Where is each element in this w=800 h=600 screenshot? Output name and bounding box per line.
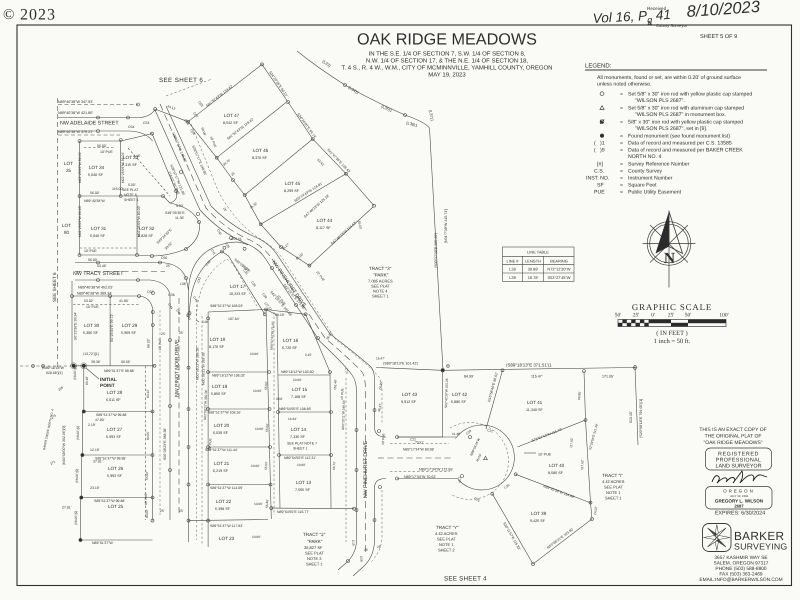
svg-text:L38: L38 [509,267,516,272]
svg-text:LOT 16: LOT 16 [283,338,299,343]
svg-text:OREGON: OREGON [723,489,755,494]
svg-text:5,969 SF: 5,969 SF [121,331,137,335]
svg-text:C08: C08 [359,556,364,562]
svg-text:County Survey: County Survey [628,169,662,175]
svg-text:10.00': 10.00' [297,463,306,467]
svg-text:"PARK": "PARK" [373,273,389,278]
svg-text:S89°51'37"W 117.93': S89°51'37"W 117.93' [210,524,243,528]
svg-text:Received: Received [647,6,667,11]
svg-text:NOTE 1: NOTE 1 [439,542,454,547]
svg-text:LINE TABLE: LINE TABLE [527,250,549,255]
svg-text:C15: C15 [351,540,356,546]
svg-text:N02°25'09"W 80.03': N02°25'09"W 80.03' [137,205,141,237]
svg-text:SEE PLAT: SEE PLAT [604,485,623,490]
svg-text:107.84': 107.84' [228,317,240,321]
svg-text:MAY 19, 2023: MAY 19, 2023 [428,72,466,79]
svg-text:LOT 21: LOT 21 [214,461,230,466]
svg-text:N89°17'34"W 80.98': N89°17'34"W 80.98' [403,448,435,452]
svg-text:(S89°18'13"E 371.51')1: (S89°18'13"E 371.51')1 [506,363,552,368]
svg-text:SHEET 1: SHEET 1 [124,198,139,202]
svg-text:10.00': 10.00' [251,464,260,468]
svg-text:FAX (503) 363-2469: FAX (503) 363-2469 [719,572,763,578]
svg-text:2023: 2023 [20,7,56,24]
svg-text:THE ORIGINAL PLAT OF: THE ORIGINAL PLAT OF [705,434,762,440]
svg-text:LOT 45: LOT 45 [285,181,301,186]
svg-text:36,827 SF: 36,827 SF [304,545,323,550]
svg-text:LOT 42: LOT 42 [452,392,468,397]
svg-text:171.05': 171.05' [602,375,614,379]
svg-text:14.34': 14.34' [288,417,297,421]
svg-text:9,425 SF: 9,425 SF [530,519,546,523]
svg-text:53.46': 53.46' [97,264,107,268]
svg-text:15' PUE: 15' PUE [158,338,162,350]
svg-text:10.00': 10.00' [250,352,259,356]
svg-text:SF: SF [597,183,604,189]
svg-text:LOT: LOT [64,161,73,166]
svg-text:TRACT "2": TRACT "2" [303,532,326,537]
svg-text:6,039 SF: 6,039 SF [213,431,229,435]
svg-text:L38: L38 [180,282,186,286]
svg-text:POINT: POINT [100,383,115,389]
svg-text:LAND SURVEYOR: LAND SURVEYOR [715,464,761,470]
svg-text:15.47': 15.47' [376,357,385,361]
svg-text:NOTE 1: NOTE 1 [606,490,621,495]
svg-text:5/8" x 30" iron rod with yello: 5/8" x 30" iron rod with yellow plastic … [628,120,743,126]
svg-text:All monuments, found or set, a: All monuments, found or set, are within … [597,75,741,81]
svg-text:LOT 39: LOT 39 [531,511,547,516]
svg-text:S00°08'23"E 368.38': S00°08'23"E 368.38' [163,428,167,460]
svg-text:LOT 25: LOT 25 [108,504,124,509]
svg-text:(S20°08'18"E 794.05')[1]: (S20°08'18"E 794.05')[1] [639,399,643,438]
svg-text:( )1: ( )1 [594,141,605,147]
svg-text:=: = [620,120,623,126]
svg-text:N89°54'55"E 116.77': N89°54'55"E 116.77' [277,510,309,514]
svg-text:LOT 20: LOT 20 [214,423,230,428]
svg-text:C53: C53 [143,121,149,125]
svg-text:Set 5/8" x 30" iron rod with a: Set 5/8" x 30" iron rod with aluminum ca… [628,106,744,112]
svg-text:Instrument Number: Instrument Number [628,176,673,182]
svg-text:OAK RIDGE MEADOWS: OAK RIDGE MEADOWS [357,31,537,49]
svg-text:1 inch = 50 ft.: 1 inch = 50 ft. [654,338,691,345]
svg-text:9.15': 9.15' [305,353,312,357]
svg-text:N89°17'34"W 70.62': N89°17'34"W 70.62' [404,475,436,479]
svg-text:(N00°08'00"W 302.06')[9]: (N00°08'00"W 302.06')[9] [62,426,66,465]
svg-text:=: = [620,162,623,168]
svg-text:NW ADELAIDE STREET: NW ADELAIDE STREET [60,121,119,127]
svg-text:53.02': 53.02' [84,299,94,303]
svg-text:5.00': 5.00' [128,183,136,187]
svg-text:S89°51'37"W 99.88': S89°51'37"W 99.88' [94,499,125,503]
svg-text:NW TRACY STREET: NW TRACY STREET [73,271,124,277]
svg-text:0': 0' [651,313,655,319]
svg-text:2.19': 2.19' [88,423,96,427]
svg-text:=: = [620,134,623,140]
svg-text:5,856 SF: 5,856 SF [211,392,227,396]
svg-text:Public Utility Easement: Public Utility Easement [628,190,682,196]
svg-text:SEE SHEET 6: SEE SHEET 6 [159,77,203,84]
svg-text:N89°40'38"W: N89°40'38"W [84,199,106,203]
svg-text:25': 25' [377,545,382,549]
svg-text:25': 25' [633,313,640,319]
svg-text:LOT 46: LOT 46 [253,148,269,153]
svg-text:N02°25'09"W 80.03': N02°25'09"W 80.03' [78,205,82,237]
svg-text:12.19': 12.19' [90,448,100,452]
svg-text:C54: C54 [128,125,134,129]
svg-text:4.42 ACRES: 4.42 ACRES [435,531,458,536]
svg-text:LOT 15: LOT 15 [292,387,308,392]
svg-text:5,993 SF: 5,993 SF [107,474,123,478]
svg-text:12' PUE: 12' PUE [208,438,212,450]
svg-text:=: = [620,169,623,175]
svg-text:SURVEYING: SURVEYING [734,542,787,552]
svg-text:N72°12'30"W: N72°12'30"W [547,267,570,272]
svg-text:=: = [620,176,623,182]
svg-text:LOT 41: LOT 41 [527,400,543,405]
svg-text:10' PUE: 10' PUE [144,493,148,505]
svg-text:N: N [664,250,675,267]
svg-text:SHEET 1: SHEET 1 [306,562,323,567]
svg-text:=: = [620,183,623,189]
svg-text:N89°54'55"E 108.86': N89°54'55"E 108.86' [279,407,312,411]
svg-text:N89°51'37"W: N89°51'37"W [92,541,114,545]
svg-text:C22: C22 [410,438,416,442]
svg-text:Data of record and measured pe: Data of record and measured per BAKER CR… [628,148,743,154]
svg-text:30.88': 30.88' [528,267,539,272]
svg-text:N02°25'09"W 80.01': N02°25'09"W 80.01' [78,151,82,183]
svg-text:115.00': 115.00' [112,187,123,191]
svg-text:INST. NO.: INST. NO. [586,176,609,182]
svg-text:"WILSON PLS 2687" in monument: "WILSON PLS 2687" in monument box. [635,112,726,118]
svg-text:(13.72')[1]: (13.72')[1] [83,352,99,356]
svg-text:6,219 SF: 6,219 SF [213,469,229,473]
svg-text:55.05': 55.05' [264,461,268,470]
svg-text:50': 50' [615,313,622,319]
svg-text:7,108 SF: 7,108 SF [291,395,307,399]
svg-text:S89°51'37"W 99.88': S89°51'37"W 99.88' [96,413,127,417]
svg-text:LOT 19: LOT 19 [212,384,228,389]
svg-text:Data of record and measured pe: Data of record and measured per C.S. 135… [628,141,732,147]
svg-text:8,176 SF: 8,176 SF [209,345,225,349]
svg-text:80: 80 [64,230,70,235]
svg-text:60.56': 60.56' [121,360,131,364]
svg-text:LOT 30: LOT 30 [84,323,100,328]
svg-text:10.00': 10.00' [254,502,263,506]
svg-text:23.19': 23.19' [90,486,100,490]
svg-text:SEE PLAT: SEE PLAT [437,537,456,542]
svg-text:N89°51'37"E 99.88': N89°51'37"E 99.88' [104,369,135,373]
svg-text:PUE: PUE [594,190,605,196]
svg-text:=: = [620,92,623,98]
svg-text:LOT 23: LOT 23 [219,536,235,541]
svg-text:C50: C50 [161,256,167,260]
svg-text:LOT 34: LOT 34 [89,165,105,170]
svg-text:LENGTH: LENGTH [525,258,541,263]
svg-text:25': 25' [179,509,184,513]
svg-text:N89°40'38"W 421.80': N89°40'38"W 421.80' [58,111,93,115]
svg-text:SALEM, OREGON 97317: SALEM, OREGON 97317 [714,561,769,567]
svg-text:1.36: 1.36 [168,293,175,297]
svg-text:N89°40'38"W 452.03': N89°40'38"W 452.03' [78,286,113,290]
svg-text:SEE PLAT: SEE PLAT [122,188,139,192]
svg-text:LEGEND:: LEGEND: [585,63,612,70]
svg-text:TRACT "I": TRACT "I" [602,473,623,478]
svg-text:25': 25' [364,548,369,552]
svg-text:10.00': 10.00' [253,389,262,393]
svg-text:SEE PLAT NOTE 7: SEE PLAT NOTE 7 [287,442,317,446]
svg-text:25': 25' [161,332,166,336]
svg-text:SHEET 1: SHEET 1 [293,447,308,451]
svg-text:NOTE 8: NOTE 8 [124,193,137,197]
svg-text:LOT 18: LOT 18 [210,337,226,342]
svg-text:( )9: ( )9 [594,148,605,154]
svg-text:8,580 SF: 8,580 SF [548,471,564,475]
svg-text:NOTE 3: NOTE 3 [307,556,322,561]
svg-text:3657 KASHMIR WAY SE: 3657 KASHMIR WAY SE [714,555,767,561]
svg-text:Survey Reference Number: Survey Reference Number [628,162,690,168]
svg-text:TRACT "3": TRACT "3" [369,266,392,271]
svg-text:JULY 19, 1994: JULY 19, 1994 [730,494,749,498]
svg-text:( IN FEET ): ( IN FEET ) [656,330,687,337]
svg-text:115.47': 115.47' [531,375,543,379]
svg-text:5,040 SF: 5,040 SF [90,234,106,238]
svg-text:84.99': 84.99' [464,375,474,379]
svg-text:10.00': 10.00' [252,535,261,539]
svg-text:25': 25' [179,331,184,335]
svg-text:LOT 14: LOT 14 [291,427,307,432]
svg-text:1.46': 1.46' [133,154,141,158]
svg-text:LOT 17: LOT 17 [230,284,246,289]
svg-text:N89°54'55"E 112.31': N89°54'55"E 112.31' [284,456,316,460]
svg-text:60.00': 60.00' [145,509,149,518]
svg-text:6,720 SF: 6,720 SF [282,346,298,350]
svg-text:LOT 40: LOT 40 [549,463,565,468]
svg-text:[#]: [#] [597,162,603,168]
svg-text:LOT 32: LOT 32 [139,226,155,231]
svg-text:"OAK RIDGE MEADOWS": "OAK RIDGE MEADOWS" [703,440,762,446]
svg-text:=: = [620,190,623,196]
svg-text:8,117 SF: 8,117 SF [316,226,331,230]
svg-text:55.00': 55.00' [145,471,149,480]
svg-text:"WILSON PLS 2687".: "WILSON PLS 2687". [635,98,685,104]
svg-text:Set 5/8" x 30" iron rod with y: Set 5/8" x 30" iron rod with yellow plas… [628,92,752,98]
svg-text:N00°08'23"W 368.38': N00°08'23"W 368.38' [196,347,200,380]
svg-text:BEARING: BEARING [550,258,568,263]
svg-text:EXPIRES: 6/30/2024: EXPIRES: 6/30/2024 [715,511,765,517]
svg-text:3.02': 3.02' [276,397,283,401]
svg-text:LINE #: LINE # [507,258,520,263]
svg-text:SHEET 5 OF 9: SHEET 5 OF 9 [700,34,737,40]
svg-text:(S89°18'13"E 101.42'): (S89°18'13"E 101.42') [383,362,418,366]
svg-text:LOT 47: LOT 47 [224,113,240,118]
svg-text:[N01°7'39"W 415.71']: [N01°7'39"W 415.71'] [444,209,448,243]
svg-text:=: = [620,106,623,112]
svg-text:LOT 43: LOT 43 [402,392,418,397]
svg-text:N89°17'34"W 172.65': N89°17'34"W 172.65' [419,468,453,472]
svg-text:47.80': 47.80' [95,418,105,422]
svg-text:S89°51'37"W 108.16': S89°51'37"W 108.16' [208,411,241,415]
svg-text:66.22': 66.22' [147,338,151,348]
svg-text:S53°27'45"W: S53°27'45"W [548,275,571,280]
svg-text:IN THE S.E. 1/4 OF SECTION 7,: IN THE S.E. 1/4 OF SECTION 7, S.W. 1/4 O… [369,51,526,58]
svg-text:55.00': 55.00' [265,423,269,432]
svg-text:SEE PLAT: SEE PLAT [305,551,324,556]
svg-text:(58.00')[9]: (58.00')[9] [73,366,77,380]
svg-text:S0°25'00"E 99.72': S0°25'00"E 99.72' [110,314,114,342]
svg-text:9,912 SF: 9,912 SF [401,400,417,404]
svg-text:25': 25' [668,313,675,319]
svg-text:©: © [3,7,14,23]
svg-text:6,011 SF: 6,011 SF [106,398,121,402]
svg-text:(N89°18'18"W: (N89°18'18"W [42,366,65,370]
svg-text:4.42 ACRES: 4.42 ACRES [602,479,625,484]
svg-text:"WILSON PLS 2687", set in [9].: "WILSON PLS 2687", set in [9]. [635,126,707,132]
svg-text:SHEET 1: SHEET 1 [372,294,389,299]
svg-text:25': 25' [160,509,165,513]
svg-text:(S00°17'39"E 385.20'): (S00°17'39"E 385.20') [434,233,438,268]
svg-text:C52: C52 [147,290,153,294]
svg-text:8,299 SF: 8,299 SF [284,189,300,193]
svg-text:10' PUE: 10' PUE [538,453,552,457]
svg-text:Square Feet: Square Feet [628,183,657,189]
svg-text:10' PUE: 10' PUE [100,150,113,154]
svg-text:(58.00')[9]: (58.00')[9] [76,426,80,440]
svg-text:10' PUE: 10' PUE [84,249,97,253]
svg-text:10.00': 10.00' [293,378,302,382]
svg-text:6,886 SF: 6,886 SF [451,400,467,404]
svg-text:628.68')[1]: 628.68')[1] [46,371,62,375]
svg-text:10' PUE: 10' PUE [86,305,99,309]
svg-text:PHONE (503) 588-8800: PHONE (503) 588-8800 [715,566,767,572]
svg-text:(58.00')[9]: (58.00')[9] [75,469,79,483]
svg-text:7,336 SF: 7,336 SF [290,435,306,439]
svg-text:=: = [620,148,623,154]
svg-text:11.36': 11.36' [175,216,184,220]
svg-text:11,340 SF: 11,340 SF [526,408,543,412]
svg-text:INITIAL: INITIAL [100,377,117,383]
svg-text:LOT 13: LOT 13 [296,480,312,485]
svg-text:10' PUE: 10' PUE [340,388,344,400]
svg-text:NW PINOT NOIR DRIVE: NW PINOT NOIR DRIVE [175,339,181,397]
svg-text:70.51': 70.51' [415,441,424,445]
svg-text:5,306 SF: 5,306 SF [83,331,99,335]
svg-text:N89°40'38"W 389.34': N89°40'38"W 389.34' [77,292,112,296]
svg-text:2687: 2687 [734,504,744,509]
svg-text:5,993 SF: 5,993 SF [106,435,122,439]
svg-text:60.19': 60.19' [146,389,150,398]
svg-text:L39: L39 [509,275,516,280]
svg-text:16.78': 16.78' [528,275,539,280]
svg-text:LOT 29: LOT 29 [122,323,138,328]
svg-text:Found monument (see found monu: Found monument (see found monument list) [628,134,730,140]
svg-text:LOT 27: LOT 27 [107,427,123,432]
svg-text:N89°40'38"W 347.93': N89°40'38"W 347.93' [58,100,93,104]
svg-text:8,370 SF: 8,370 SF [252,156,268,160]
svg-text:LOT 44: LOT 44 [317,218,333,223]
svg-text:613.15': 613.15' [629,411,633,423]
svg-text:NORTH NO. 4: NORTH NO. 4 [628,154,661,160]
svg-text:8,542 SF: 8,542 SF [223,121,239,125]
svg-text:N89°40'38"W 375.21': N89°40'38"W 375.21' [58,130,93,134]
svg-text:69.85': 69.85' [577,391,582,400]
svg-text:"PARK": "PARK" [307,539,323,544]
svg-text:=: = [620,141,623,147]
svg-text:10.00': 10.00' [255,427,264,431]
svg-text:S49°35'30"E: S49°35'30"E [165,211,185,215]
svg-text:EMAIL:INFO@BARKERWILSON.COM: EMAIL:INFO@BARKERWILSON.COM [699,577,782,583]
svg-text:C55: C55 [231,237,237,241]
svg-text:N02°25'09"W 80.01': N02°25'09"W 80.01' [121,151,125,183]
svg-text:10' PUE: 10' PUE [381,433,386,445]
svg-text:S0°23'36"E 99.94': S0°23'36"E 99.94' [74,312,78,340]
svg-text:7,565 SF: 7,565 SF [295,488,311,492]
svg-text:60.00': 60.00' [146,431,150,440]
svg-text:N89°18'12"W 108.02': N89°18'12"W 108.02' [212,374,245,378]
svg-text:10,233 SF: 10,233 SF [229,292,247,296]
svg-text:(58.00')[9]: (58.00')[9] [74,511,78,525]
svg-text:56.48': 56.48' [265,499,269,508]
svg-text:unless noted otherwise.: unless noted otherwise. [597,82,652,88]
svg-text:C.S.: C.S. [594,169,604,175]
svg-text:T. 4 S., R. 4 W., W.M., CITY O: T. 4 S., R. 4 W., W.M., CITY OF MCMINNVI… [341,65,552,72]
svg-text:100': 100' [719,313,728,319]
svg-text:THIS IS AN EXACT COPY OF: THIS IS AN EXACT COPY OF [699,427,766,433]
svg-text:27.81': 27.81' [62,506,72,510]
svg-text:56.00': 56.00' [88,258,98,262]
svg-text:153.48': 153.48' [333,379,338,390]
svg-text:NW PINEHURST DRIVE: NW PINEHURST DRIVE [363,440,369,498]
svg-text:S89°51'37"W 114.69': S89°51'37"W 114.69' [210,486,243,490]
svg-text:S89°51'37"W 168.03': S89°51'37"W 168.03' [210,304,243,308]
svg-text:65.18': 65.18' [85,376,89,385]
svg-text:SEE SHEET 4: SEE SHEET 4 [444,576,487,583]
svg-text:50': 50' [685,313,692,319]
svg-text:SHEET 1: SHEET 1 [605,496,622,501]
svg-text:35: 35 [66,168,72,173]
svg-text:LOT: LOT [62,223,71,228]
svg-text:LOT 28: LOT 28 [107,390,123,395]
svg-text:SHEET 2: SHEET 2 [438,548,455,553]
svg-text:37.81': 37.81' [93,460,103,464]
svg-text:LOT 26: LOT 26 [108,466,124,471]
svg-text:N89°18'12"W 103.50': N89°18'12"W 103.50' [281,370,314,374]
svg-text:C48: C48 [202,320,208,324]
svg-text:TRACT "Y": TRACT "Y" [436,525,459,530]
svg-text:117.62': 117.62' [580,459,585,470]
svg-text:66.75': 66.75' [332,461,336,470]
svg-text:6,398 SF: 6,398 SF [215,507,231,511]
svg-text:SEE SHEET 6: SEE SHEET 6 [52,272,57,302]
svg-text:5,040 SF: 5,040 SF [88,173,104,177]
svg-text:55.00': 55.00' [264,381,268,390]
svg-text:41.90': 41.90' [119,299,129,303]
svg-text:LOT 31: LOT 31 [91,226,107,231]
svg-text:LOT 22: LOT 22 [216,499,232,504]
svg-text:56.00': 56.00' [90,191,100,195]
svg-text:25': 25' [166,264,171,268]
svg-text:39.38': 39.38' [91,360,101,364]
svg-text:GRAPHIC SCALE: GRAPHIC SCALE [632,302,712,312]
svg-text:N.W. 1/4 OF SECTION 17, & THE: N.W. 1/4 OF SECTION 17, & THE N.E. 1/4 O… [366,58,529,65]
